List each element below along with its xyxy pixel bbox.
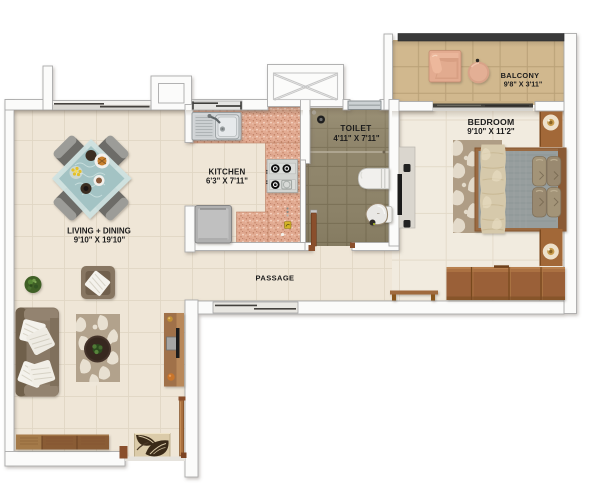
svg-text:PASSAGE: PASSAGE	[256, 274, 295, 283]
svg-text:9'8" X 3'11": 9'8" X 3'11"	[504, 80, 543, 89]
svg-text:4'11" X 7'11": 4'11" X 7'11"	[333, 134, 380, 143]
svg-text:LIVING + DINING: LIVING + DINING	[67, 227, 131, 236]
svg-text:9'10" X 11'2": 9'10" X 11'2"	[467, 127, 515, 136]
svg-text:TOILET: TOILET	[340, 124, 371, 133]
svg-text:6'3" X 7'11": 6'3" X 7'11"	[206, 177, 248, 186]
svg-text:9'10" X 19'10": 9'10" X 19'10"	[74, 236, 126, 245]
svg-text:KITCHEN: KITCHEN	[209, 168, 246, 177]
svg-text:BEDROOM: BEDROOM	[468, 117, 515, 127]
